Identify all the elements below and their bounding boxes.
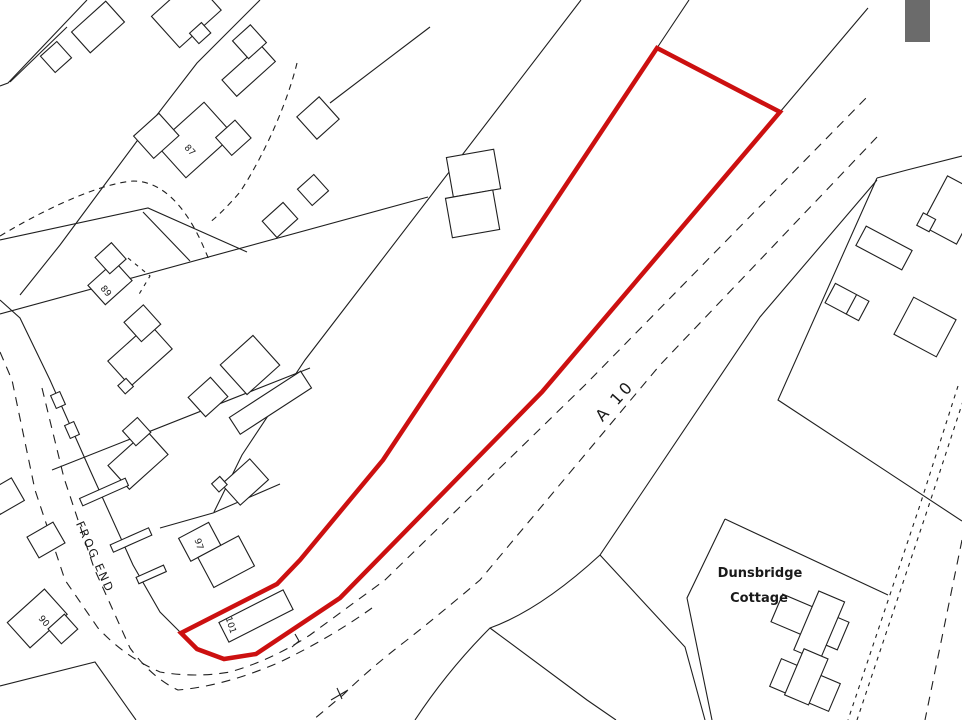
building-rect	[297, 174, 328, 205]
label-road-frog-end: FROG END	[73, 519, 117, 595]
building-rect	[0, 478, 24, 515]
building	[856, 226, 912, 270]
garden-boundary-dashes	[0, 63, 297, 296]
building-rect	[825, 283, 869, 320]
wall-rect	[136, 565, 166, 584]
building	[297, 97, 339, 139]
building	[212, 454, 269, 510]
parcel-line	[657, 0, 689, 48]
buildings	[0, 0, 962, 713]
dashed-boundary	[925, 540, 962, 720]
building	[0, 478, 24, 515]
building-rect	[27, 522, 65, 558]
parcel-line	[330, 27, 430, 103]
map-labels: A 10 FROG END Dunsbridge Cottage 87 89 9…	[36, 143, 803, 635]
building	[89, 305, 179, 394]
parcel-line	[877, 156, 962, 178]
building	[207, 25, 280, 97]
building	[769, 642, 847, 713]
building-rect	[297, 97, 339, 139]
site-boundary-red-outline	[181, 48, 780, 659]
parcel-line	[687, 519, 725, 720]
wall-strip	[110, 528, 152, 552]
building-rect	[921, 176, 962, 244]
building-rect	[40, 41, 71, 72]
building-rect	[151, 0, 221, 48]
parcel-line	[0, 0, 87, 86]
wall-strip	[136, 565, 166, 584]
building-pair-field	[439, 149, 508, 238]
parcel-line	[143, 212, 190, 261]
road-fork-line	[490, 628, 616, 720]
road-centre-dashed	[313, 137, 877, 720]
building-rect	[894, 297, 956, 357]
label-dunsbridge: Dunsbridge	[718, 566, 803, 581]
wall-strip	[51, 392, 66, 409]
parcel-line	[0, 197, 428, 314]
building	[262, 202, 298, 237]
hedge-dashes	[848, 386, 958, 720]
building-rect	[188, 377, 228, 416]
building-rect	[220, 335, 279, 394]
parcel-line	[0, 662, 136, 720]
building	[72, 1, 125, 53]
parcel-line	[52, 368, 310, 470]
gate-mark	[292, 634, 299, 647]
wall-strip	[65, 422, 80, 439]
gate-mark	[331, 688, 348, 700]
a10-road	[292, 137, 877, 720]
building-rect	[445, 190, 499, 238]
site-boundary-underlay	[181, 48, 780, 659]
parcel-line	[725, 519, 888, 595]
building	[40, 41, 71, 72]
building-house-87	[134, 79, 251, 196]
driveway-line	[600, 555, 705, 720]
label-road-a10: A 10	[591, 376, 637, 425]
building	[27, 522, 65, 558]
parcel-line	[0, 208, 247, 252]
hedge-dashes	[857, 392, 962, 720]
wall-rect	[51, 392, 66, 409]
building	[825, 283, 869, 320]
building-house-97	[179, 513, 255, 591]
building	[297, 174, 328, 205]
label-cottage: Cottage	[730, 591, 788, 606]
building	[894, 297, 956, 357]
building-rect	[262, 202, 298, 237]
building-rect	[222, 459, 269, 505]
site-boundary	[181, 48, 780, 659]
road-edge-solid	[0, 8, 868, 659]
wall-rect	[65, 422, 80, 439]
building-rect	[72, 1, 125, 53]
dashed-boundary	[128, 258, 150, 296]
building	[220, 335, 279, 394]
wall-rect	[110, 528, 152, 552]
building	[917, 174, 962, 246]
site-plan-map: A 10 FROG END Dunsbridge Cottage 87 89 9…	[0, 0, 962, 720]
site-plan-screenshot: A 10 FROG END Dunsbridge Cottage 87 89 9…	[0, 0, 962, 720]
building-rect	[856, 226, 912, 270]
building	[151, 0, 227, 55]
corner-mark	[905, 0, 930, 42]
building	[188, 377, 228, 416]
